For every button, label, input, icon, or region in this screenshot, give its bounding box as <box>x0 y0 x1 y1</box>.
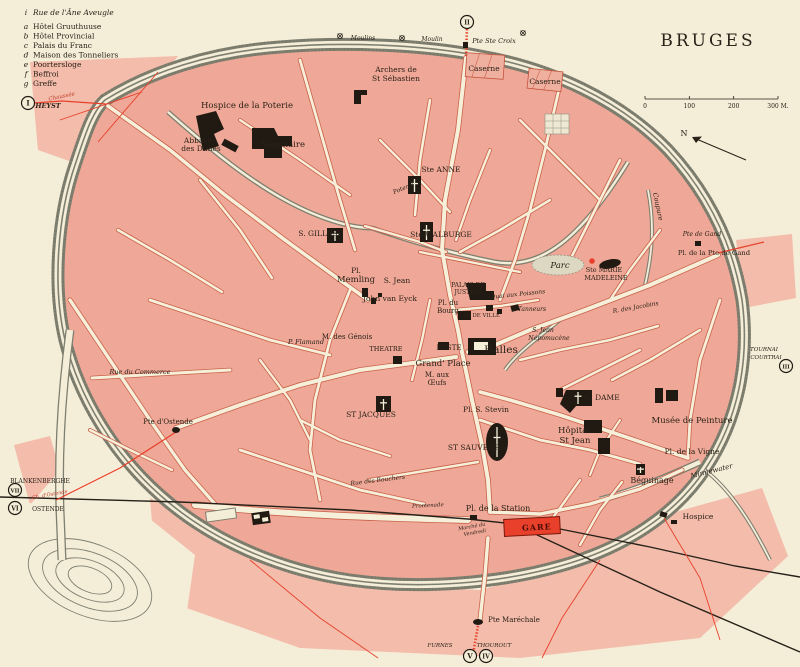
gate-numeral: I <box>26 98 29 107</box>
map-label: Musée de Peinture <box>651 415 732 426</box>
map-label: Pl. <box>351 266 361 275</box>
gate-marker: I <box>22 97 35 110</box>
map-label: BLANKENBERGHE <box>10 478 70 485</box>
map-canvas: GARE IIIIIIIVVVIVII Hospice de la Poteri… <box>0 0 800 667</box>
map-label: Memling <box>337 275 376 285</box>
map-label: Pl. de la Station <box>466 504 531 513</box>
legend-label: Rue de l'Âne Aveugle <box>32 8 114 17</box>
legend-key: g <box>24 79 29 88</box>
map-label: Archers de <box>374 65 417 74</box>
legend-label: Maison des Tonneliers <box>33 51 118 60</box>
scale-tick-label: 200 <box>728 103 740 110</box>
map-label: Pl. de la Pte de Gand <box>678 249 751 257</box>
gate-numeral: II <box>464 19 470 26</box>
legend-label: Greffe <box>33 79 57 88</box>
map-label: Pl. S. Stevin <box>463 405 509 414</box>
map-label: ST JACQUES <box>346 410 396 419</box>
map-label: Œufs <box>428 379 447 387</box>
map-label: H. DE VILLE <box>464 313 500 319</box>
map-label: Halles <box>484 344 518 356</box>
north-label: N <box>681 129 688 138</box>
map-label: FURNES <box>426 643 452 649</box>
gate-marker: IV <box>480 650 493 663</box>
legend-label: Palais du Franc <box>33 41 92 50</box>
scale-tick-label: 100 <box>684 103 696 110</box>
map-label: Ste ANNE <box>422 165 461 174</box>
gate-marker: II <box>461 16 474 29</box>
railway-station: GARE <box>504 517 561 537</box>
map-label: Séminaire <box>261 139 305 150</box>
map-label: Grand' Place <box>415 359 470 369</box>
gate-marker: V <box>464 650 477 663</box>
map-label: HEYST <box>34 102 61 110</box>
map-label: Parc <box>549 261 569 271</box>
map-label: MADELEINE <box>584 274 628 282</box>
legend-key: d <box>24 51 29 60</box>
map-label: THOUROUT <box>477 643 512 649</box>
legend-label: Poortersloge <box>33 60 82 69</box>
map-label: JUSTICE <box>454 289 482 296</box>
scale-tick-label: 300 M. <box>767 103 789 110</box>
legend-label: Hôtel Provincial <box>33 32 95 41</box>
legend-label: Beffroi <box>33 70 59 79</box>
map-label: P. Flamand <box>287 338 324 346</box>
map-label: Hospice de la Poterie <box>201 101 293 111</box>
map-label: M. des Génois <box>322 333 373 341</box>
map-title: BRUGES <box>660 31 755 51</box>
map-label: THEATRE <box>369 345 402 353</box>
map-label: Moulin <box>420 36 442 43</box>
map-label: S. Jean <box>532 327 554 334</box>
map-label: St Sébastien <box>372 74 420 83</box>
scale-tick-label: 0 <box>643 103 647 110</box>
gate-numeral: VII <box>10 488 20 494</box>
gate-numeral: III <box>782 364 790 370</box>
map-label: Rue du Commerce <box>108 368 170 376</box>
legend-key: e <box>24 60 29 69</box>
gate-numeral: VI <box>10 505 19 512</box>
map-label: Pte d'Ostende <box>143 418 193 426</box>
map-label: TOURNAI <box>750 347 779 353</box>
map-label: Hospice <box>683 512 714 521</box>
map-label: Népomucène <box>527 335 570 342</box>
legend-key: b <box>24 32 29 41</box>
map-label: S. GILLES <box>298 229 337 238</box>
map-label: OSTENDE <box>32 506 64 513</box>
map-label: PALAIS DE <box>451 282 485 289</box>
gate-marker: III <box>780 360 793 373</box>
map-label: Pl. de la Vigne <box>665 447 720 456</box>
map-label: Caserne <box>529 77 561 86</box>
gate-numeral: IV <box>482 653 490 660</box>
map-label: John van Eyck <box>362 294 417 303</box>
map-label: ST SAUVEUR <box>448 443 501 452</box>
legend-key: a <box>24 22 28 31</box>
map-label: POSTE <box>436 344 461 352</box>
gate-marker: VII <box>9 484 22 497</box>
map-label: des Dunes <box>181 144 221 153</box>
map-label: Béguinage <box>630 476 673 485</box>
legend-label: Hôtel Gruuthuuse <box>33 22 102 31</box>
map-label: Moulins <box>350 35 375 42</box>
map-label: Pl. du <box>438 299 459 307</box>
map-label: Tanneurs <box>518 306 546 313</box>
bruges-city-map: GARE IIIIIIIVVVIVII Hospice de la Poteri… <box>0 0 800 667</box>
map-label: St Jean <box>560 436 591 446</box>
map-label: N. DAME <box>584 393 619 402</box>
map-label: Ste WALBURGE <box>410 230 472 239</box>
map-label: Pte Maréchale <box>488 616 540 624</box>
map-label: COURTRAI <box>750 355 782 361</box>
gate-marker: VI <box>9 502 22 515</box>
map-label: Pte de Gand <box>682 231 721 238</box>
map-label: Pte Ste Croix <box>471 37 516 45</box>
map-label: S. Jean <box>384 276 411 285</box>
gate-numeral: V <box>466 651 473 660</box>
map-label: Caserne <box>468 64 500 73</box>
map-label: Bourg <box>437 307 459 315</box>
map-label: Ste MARIE <box>586 266 623 274</box>
map-label: M. aux <box>425 371 449 379</box>
map-label: Hôpital <box>558 425 590 436</box>
gare-label: GARE <box>522 521 552 533</box>
